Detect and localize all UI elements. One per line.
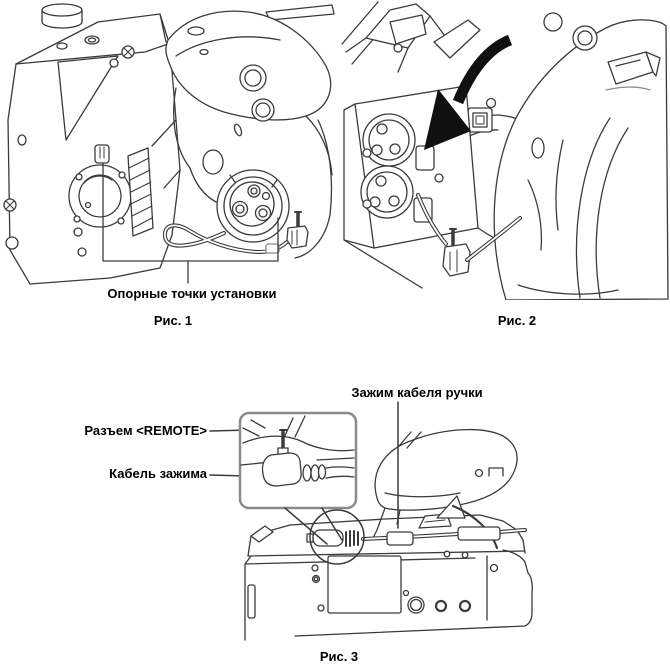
top-clamp-bracket — [342, 2, 480, 72]
lock-switch — [468, 108, 492, 132]
viewfinder-unit — [165, 5, 334, 258]
cable-holder — [458, 527, 500, 540]
manual-page: Опорные точки установки Рис. 1 — [0, 0, 670, 672]
viewfinder-mount-ring — [69, 165, 131, 227]
handle-cable-clamp — [387, 532, 413, 545]
remote-plug — [287, 212, 308, 248]
figure3-illustration — [55, 398, 585, 648]
camera-body-left — [4, 4, 180, 284]
figure3-caption: Рис. 3 — [279, 650, 399, 664]
mounting-tab — [95, 145, 109, 163]
figure2-illustration — [338, 0, 670, 300]
figure2-caption: Рис. 2 — [457, 314, 577, 328]
plugged-remote-connector — [307, 530, 358, 546]
figure1-caption: Рис. 1 — [113, 314, 233, 328]
speaker-grille — [128, 148, 153, 236]
figure1-illustration — [0, 0, 338, 286]
figure1-label-mounting-points: Опорные точки установки — [40, 287, 344, 301]
viewfinder-body — [494, 13, 668, 300]
